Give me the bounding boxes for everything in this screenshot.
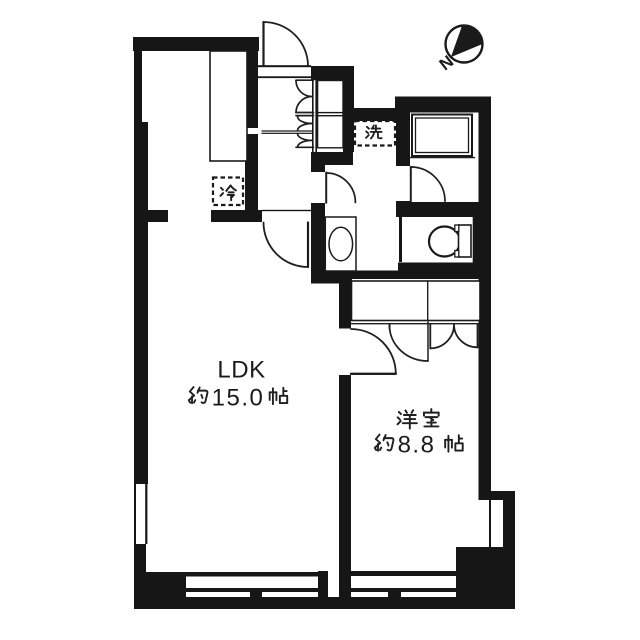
svg-text:8.8: 8.8: [398, 432, 436, 459]
svg-text:15.0: 15.0: [212, 385, 265, 412]
svg-text:LDK: LDK: [217, 357, 265, 384]
